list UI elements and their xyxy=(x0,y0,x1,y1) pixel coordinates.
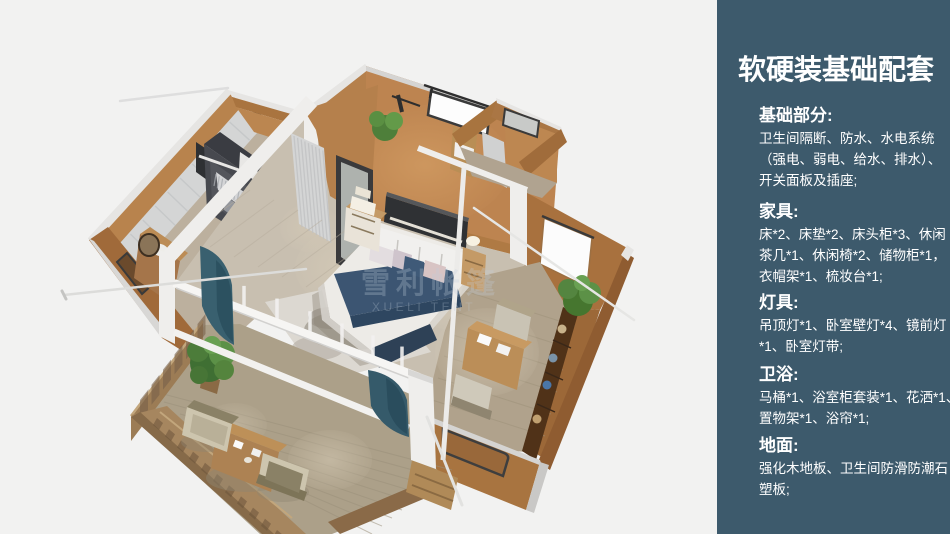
svg-text:XUELI TENT: XUELI TENT xyxy=(372,300,476,314)
svg-text:雪利帐篷: 雪利帐篷 xyxy=(361,266,501,300)
